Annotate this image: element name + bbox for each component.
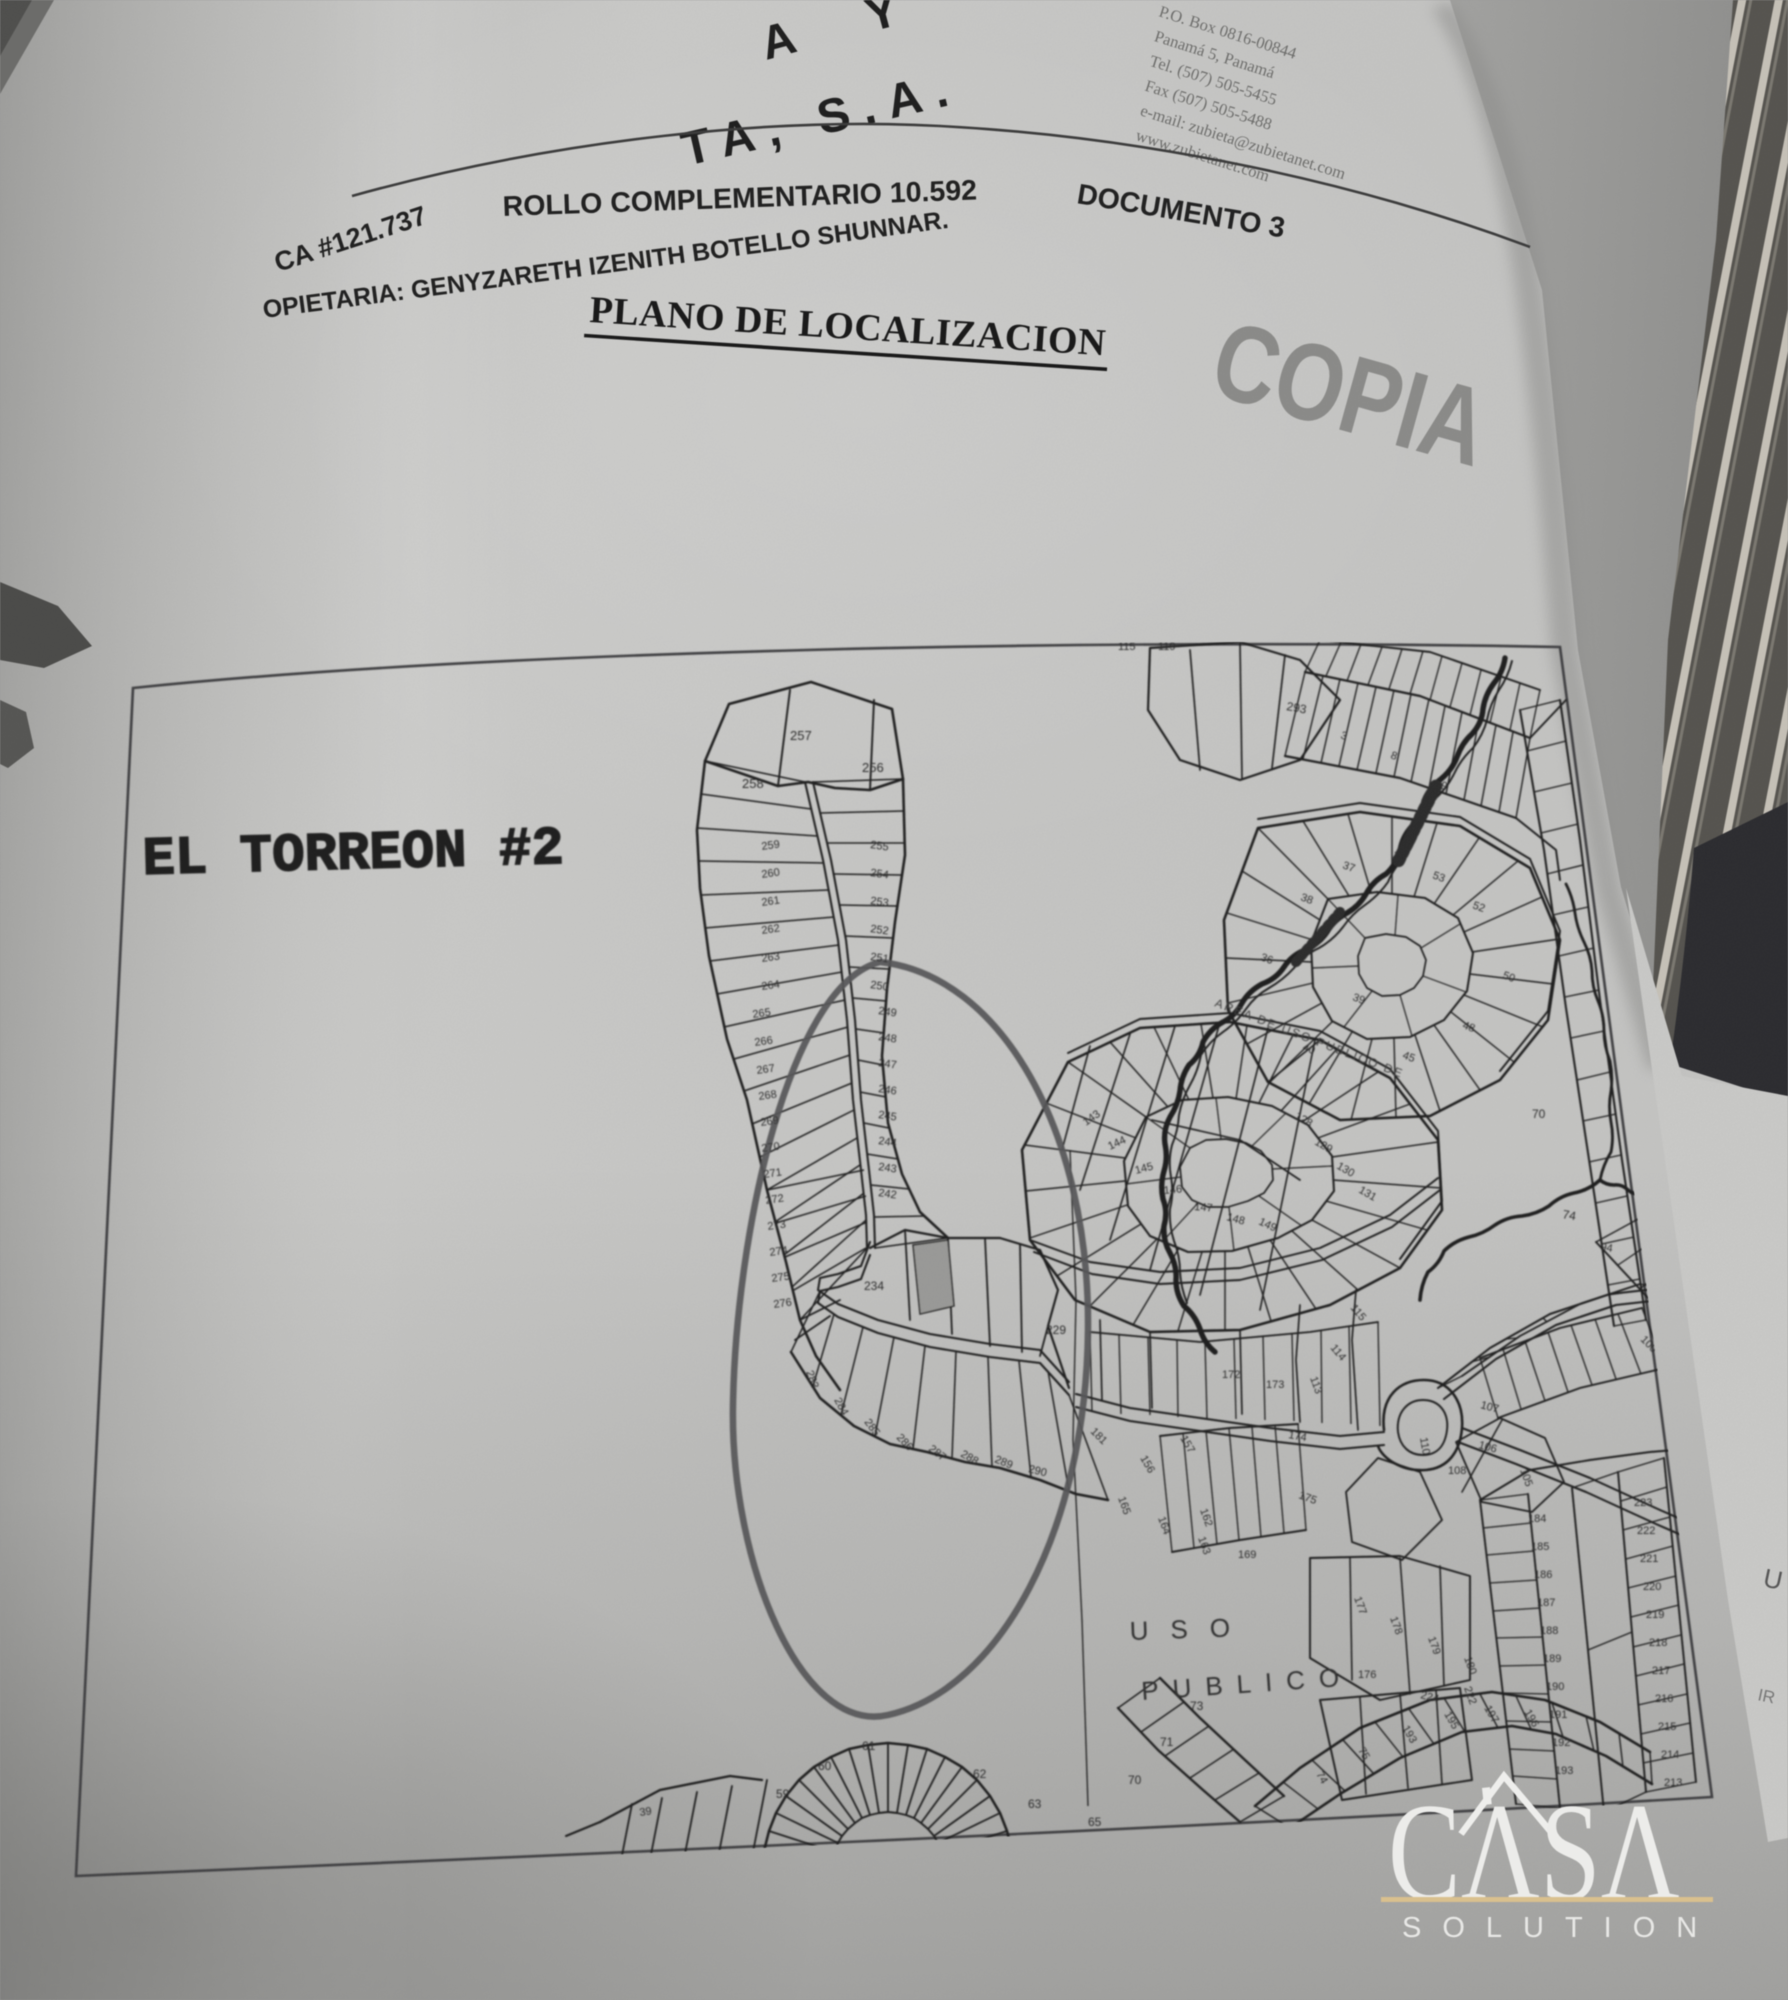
svg-text:SOLUTION: SOLUTION	[1402, 1912, 1718, 1944]
svg-text:CΛSΛ: CΛSΛ	[1388, 1775, 1680, 1930]
